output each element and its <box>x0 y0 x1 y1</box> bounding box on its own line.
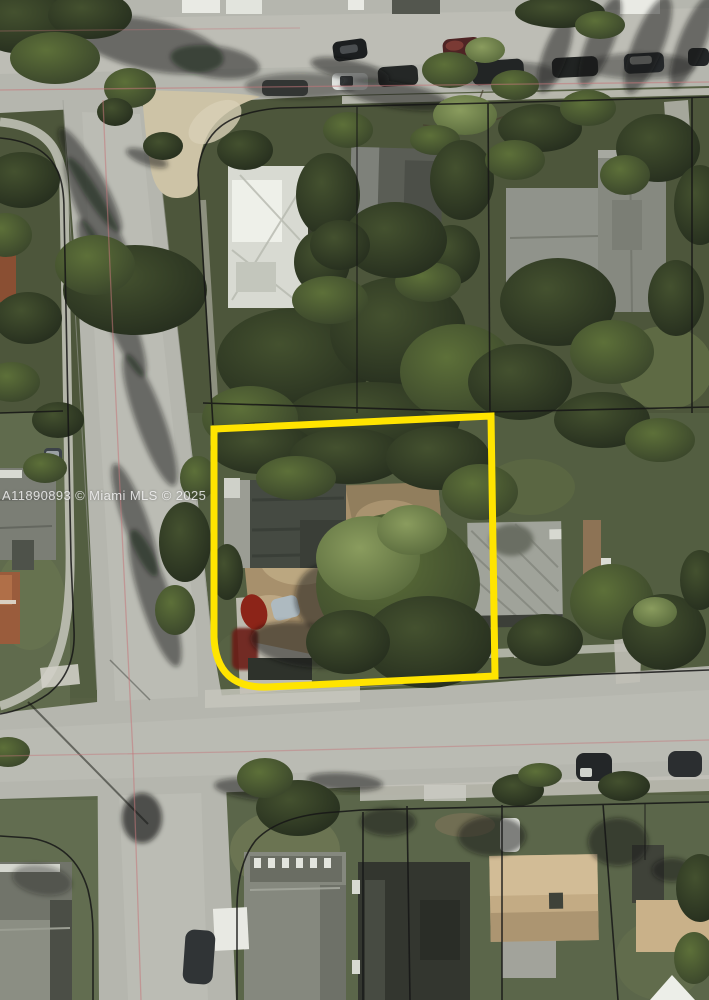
mls-aerial-screenshot: A11890893 © Miami MLS © 2025 <box>0 0 709 1000</box>
bottom-dark-house <box>352 862 470 1000</box>
car-on-street <box>182 929 216 985</box>
neighbor-roof <box>467 521 563 628</box>
white-canopy <box>213 907 249 951</box>
aerial-photo <box>0 0 709 1000</box>
bottom-tan-house <box>489 854 598 942</box>
orange-roof-house <box>0 572 20 644</box>
rooftop <box>182 0 220 13</box>
rooftop <box>226 0 262 14</box>
pole-shadow <box>122 793 162 843</box>
left-apartment <box>0 468 56 570</box>
